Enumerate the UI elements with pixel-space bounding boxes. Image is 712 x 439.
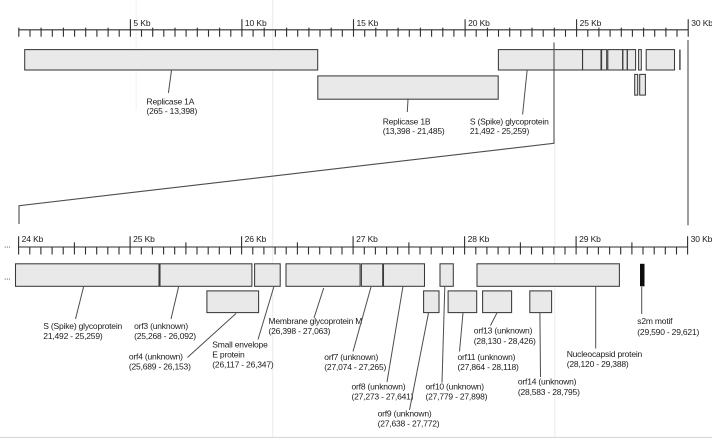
- svg-text:Membrane glycoprotein M: Membrane glycoprotein M: [269, 316, 363, 326]
- svg-text:20 Kb: 20 Kb: [468, 18, 490, 28]
- svg-text:...: ...: [4, 240, 11, 250]
- svg-text:(27,779 - 27,898): (27,779 - 27,898): [426, 391, 488, 401]
- svg-text:29 Kb: 29 Kb: [579, 234, 601, 244]
- svg-text:orf11 (unknown): orf11 (unknown): [458, 352, 516, 362]
- svg-text:(27,638 - 27,772): (27,638 - 27,772): [378, 419, 440, 429]
- svg-text:Replicase 1A: Replicase 1A: [147, 97, 195, 107]
- svg-text:(27,074 - 27,265): (27,074 - 27,265): [324, 362, 386, 372]
- svg-text:(29,590 - 29,621): (29,590 - 29,621): [637, 327, 699, 337]
- svg-text:21,492 - 25,259): 21,492 - 25,259): [43, 331, 103, 341]
- svg-text:(28,583 - 28,795): (28,583 - 28,795): [518, 387, 580, 397]
- svg-text:Nucleocapsid protein: Nucleocapsid protein: [567, 349, 643, 359]
- svg-text:orf4 (unknown): orf4 (unknown): [129, 352, 183, 362]
- svg-text:30 Kb: 30 Kb: [691, 234, 712, 244]
- svg-text:orf9 (unknown): orf9 (unknown): [378, 409, 432, 419]
- svg-text:s2m motif: s2m motif: [637, 316, 673, 326]
- svg-text:E protein: E protein: [212, 350, 245, 360]
- svg-text:S (Spike) glycoprotein: S (Spike) glycoprotein: [470, 116, 549, 126]
- svg-text:S (Spike) glycoprotein: S (Spike) glycoprotein: [43, 321, 122, 331]
- svg-text:...: ...: [4, 272, 11, 282]
- svg-text:21,492 - 25,259): 21,492 - 25,259): [470, 126, 530, 136]
- svg-text:30 Kb: 30 Kb: [691, 18, 712, 28]
- svg-text:15 Kb: 15 Kb: [357, 18, 379, 28]
- svg-text:Replicase 1B: Replicase 1B: [383, 117, 431, 127]
- svg-text:24 Kb: 24 Kb: [22, 234, 44, 244]
- svg-text:10 Kb: 10 Kb: [245, 18, 267, 28]
- svg-text:orf13 (unknown): orf13 (unknown): [474, 326, 533, 336]
- svg-text:orf14 (unknown): orf14 (unknown): [518, 377, 577, 387]
- svg-text:orf3 (unknown): orf3 (unknown): [134, 321, 188, 331]
- svg-text:27 Kb: 27 Kb: [356, 234, 378, 244]
- svg-text:(27,864 - 28,118): (27,864 - 28,118): [458, 362, 520, 372]
- svg-text:25 Kb: 25 Kb: [133, 234, 155, 244]
- svg-text:26 Kb: 26 Kb: [245, 234, 267, 244]
- svg-text:orf7 (unknown): orf7 (unknown): [324, 352, 378, 362]
- svg-text:25 Kb: 25 Kb: [580, 18, 602, 28]
- svg-text:orf8 (unknown): orf8 (unknown): [352, 382, 406, 392]
- svg-text:(26,398 - 27,063): (26,398 - 27,063): [269, 326, 331, 336]
- svg-text:5 Kb: 5 Kb: [133, 18, 150, 28]
- svg-text:28 Kb: 28 Kb: [468, 234, 490, 244]
- svg-text:(27,273 - 27,641): (27,273 - 27,641): [352, 391, 414, 401]
- svg-text:(28,120 - 29,388): (28,120 - 29,388): [567, 359, 629, 369]
- svg-text:(25,268 - 26,092): (25,268 - 26,092): [134, 331, 196, 341]
- svg-text:(28,130 - 28,426): (28,130 - 28,426): [474, 336, 536, 346]
- svg-text:(26,117 - 26,347): (26,117 - 26,347): [212, 359, 274, 369]
- svg-text:(265 - 13,398): (265 - 13,398): [147, 106, 198, 116]
- svg-text:orf10 (unknown): orf10 (unknown): [426, 382, 485, 392]
- svg-text:(25,689 - 26,153): (25,689 - 26,153): [129, 361, 191, 371]
- svg-text:(13,398 - 21,485): (13,398 - 21,485): [383, 126, 445, 136]
- svg-text:Small envelope: Small envelope: [212, 340, 268, 350]
